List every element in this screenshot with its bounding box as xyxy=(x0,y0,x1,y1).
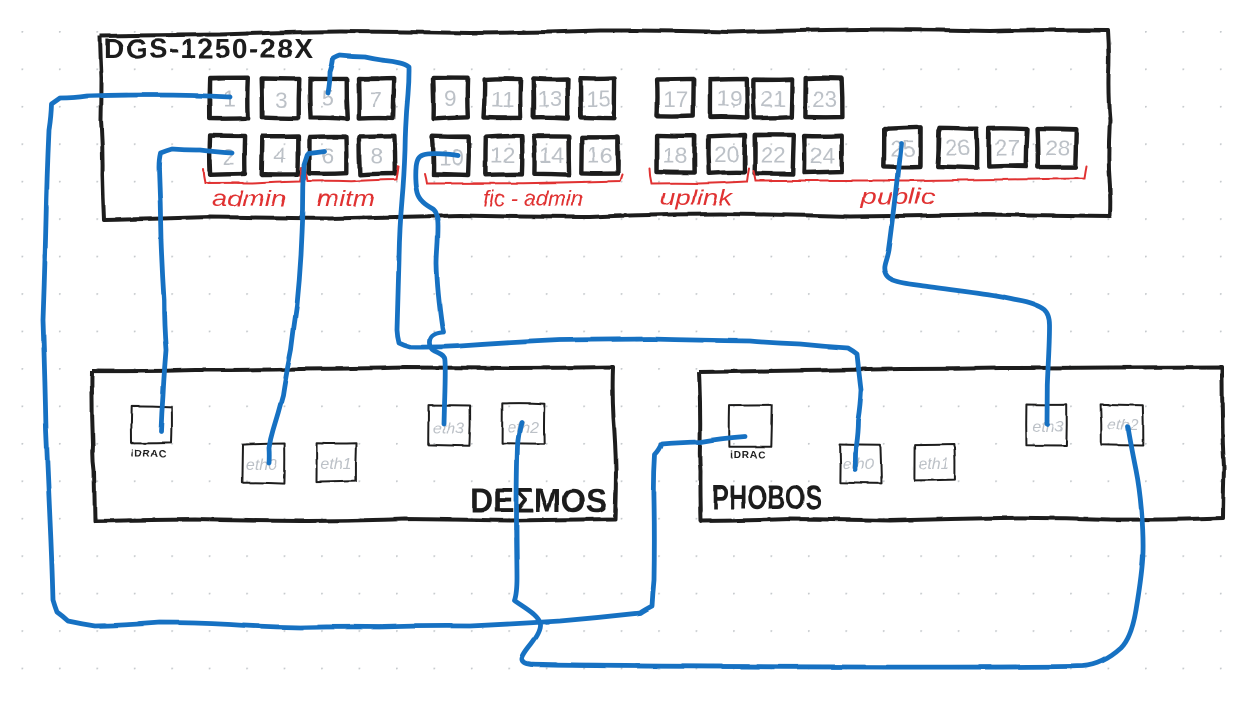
svg-text:4: 4 xyxy=(274,143,287,168)
svg-text:11: 11 xyxy=(491,87,514,112)
svg-text:27: 27 xyxy=(995,135,1020,160)
svg-text:iDRAC: iDRAC xyxy=(730,450,766,461)
svg-text:eth0: eth0 xyxy=(246,457,277,474)
svg-text:22: 22 xyxy=(761,143,786,168)
svg-text:9: 9 xyxy=(444,86,457,111)
svg-text:PHOBOS: PHOBOS xyxy=(712,479,822,517)
svg-text:15: 15 xyxy=(586,87,611,112)
svg-text:19: 19 xyxy=(717,86,742,111)
svg-text:eth1: eth1 xyxy=(918,456,949,473)
svg-text:12: 12 xyxy=(490,143,515,168)
svg-text:10: 10 xyxy=(439,145,464,170)
svg-text:16: 16 xyxy=(587,143,612,168)
svg-text:2: 2 xyxy=(222,144,235,169)
svg-text:8: 8 xyxy=(370,143,383,168)
svg-text:uplink: uplink xyxy=(660,185,733,210)
svg-text:admin: admin xyxy=(212,186,286,211)
svg-text:13: 13 xyxy=(537,86,562,111)
svg-text:DGS-1250-28X: DGS-1250-28X xyxy=(104,33,313,64)
svg-text:18: 18 xyxy=(662,143,687,168)
svg-text:7: 7 xyxy=(369,88,382,113)
svg-text:mitm: mitm xyxy=(317,186,375,211)
svg-text:23: 23 xyxy=(812,87,837,112)
svg-text:3: 3 xyxy=(275,88,288,113)
svg-text:24: 24 xyxy=(810,144,835,169)
svg-text:eth2: eth2 xyxy=(1107,417,1138,434)
svg-text:17: 17 xyxy=(663,87,688,112)
svg-text:fic - admin: fic - admin xyxy=(483,186,583,211)
svg-text:14: 14 xyxy=(539,143,564,168)
svg-text:DEΣMOS: DEΣMOS xyxy=(470,482,607,520)
svg-text:28: 28 xyxy=(1045,136,1070,161)
svg-text:6: 6 xyxy=(322,143,335,168)
svg-text:eth3: eth3 xyxy=(433,421,464,438)
svg-text:eth1: eth1 xyxy=(320,456,351,473)
svg-text:eth0: eth0 xyxy=(842,456,873,473)
svg-text:iDRAC: iDRAC xyxy=(131,449,167,460)
svg-text:26: 26 xyxy=(945,136,970,161)
svg-text:21: 21 xyxy=(760,86,785,111)
svg-text:20: 20 xyxy=(714,142,739,167)
